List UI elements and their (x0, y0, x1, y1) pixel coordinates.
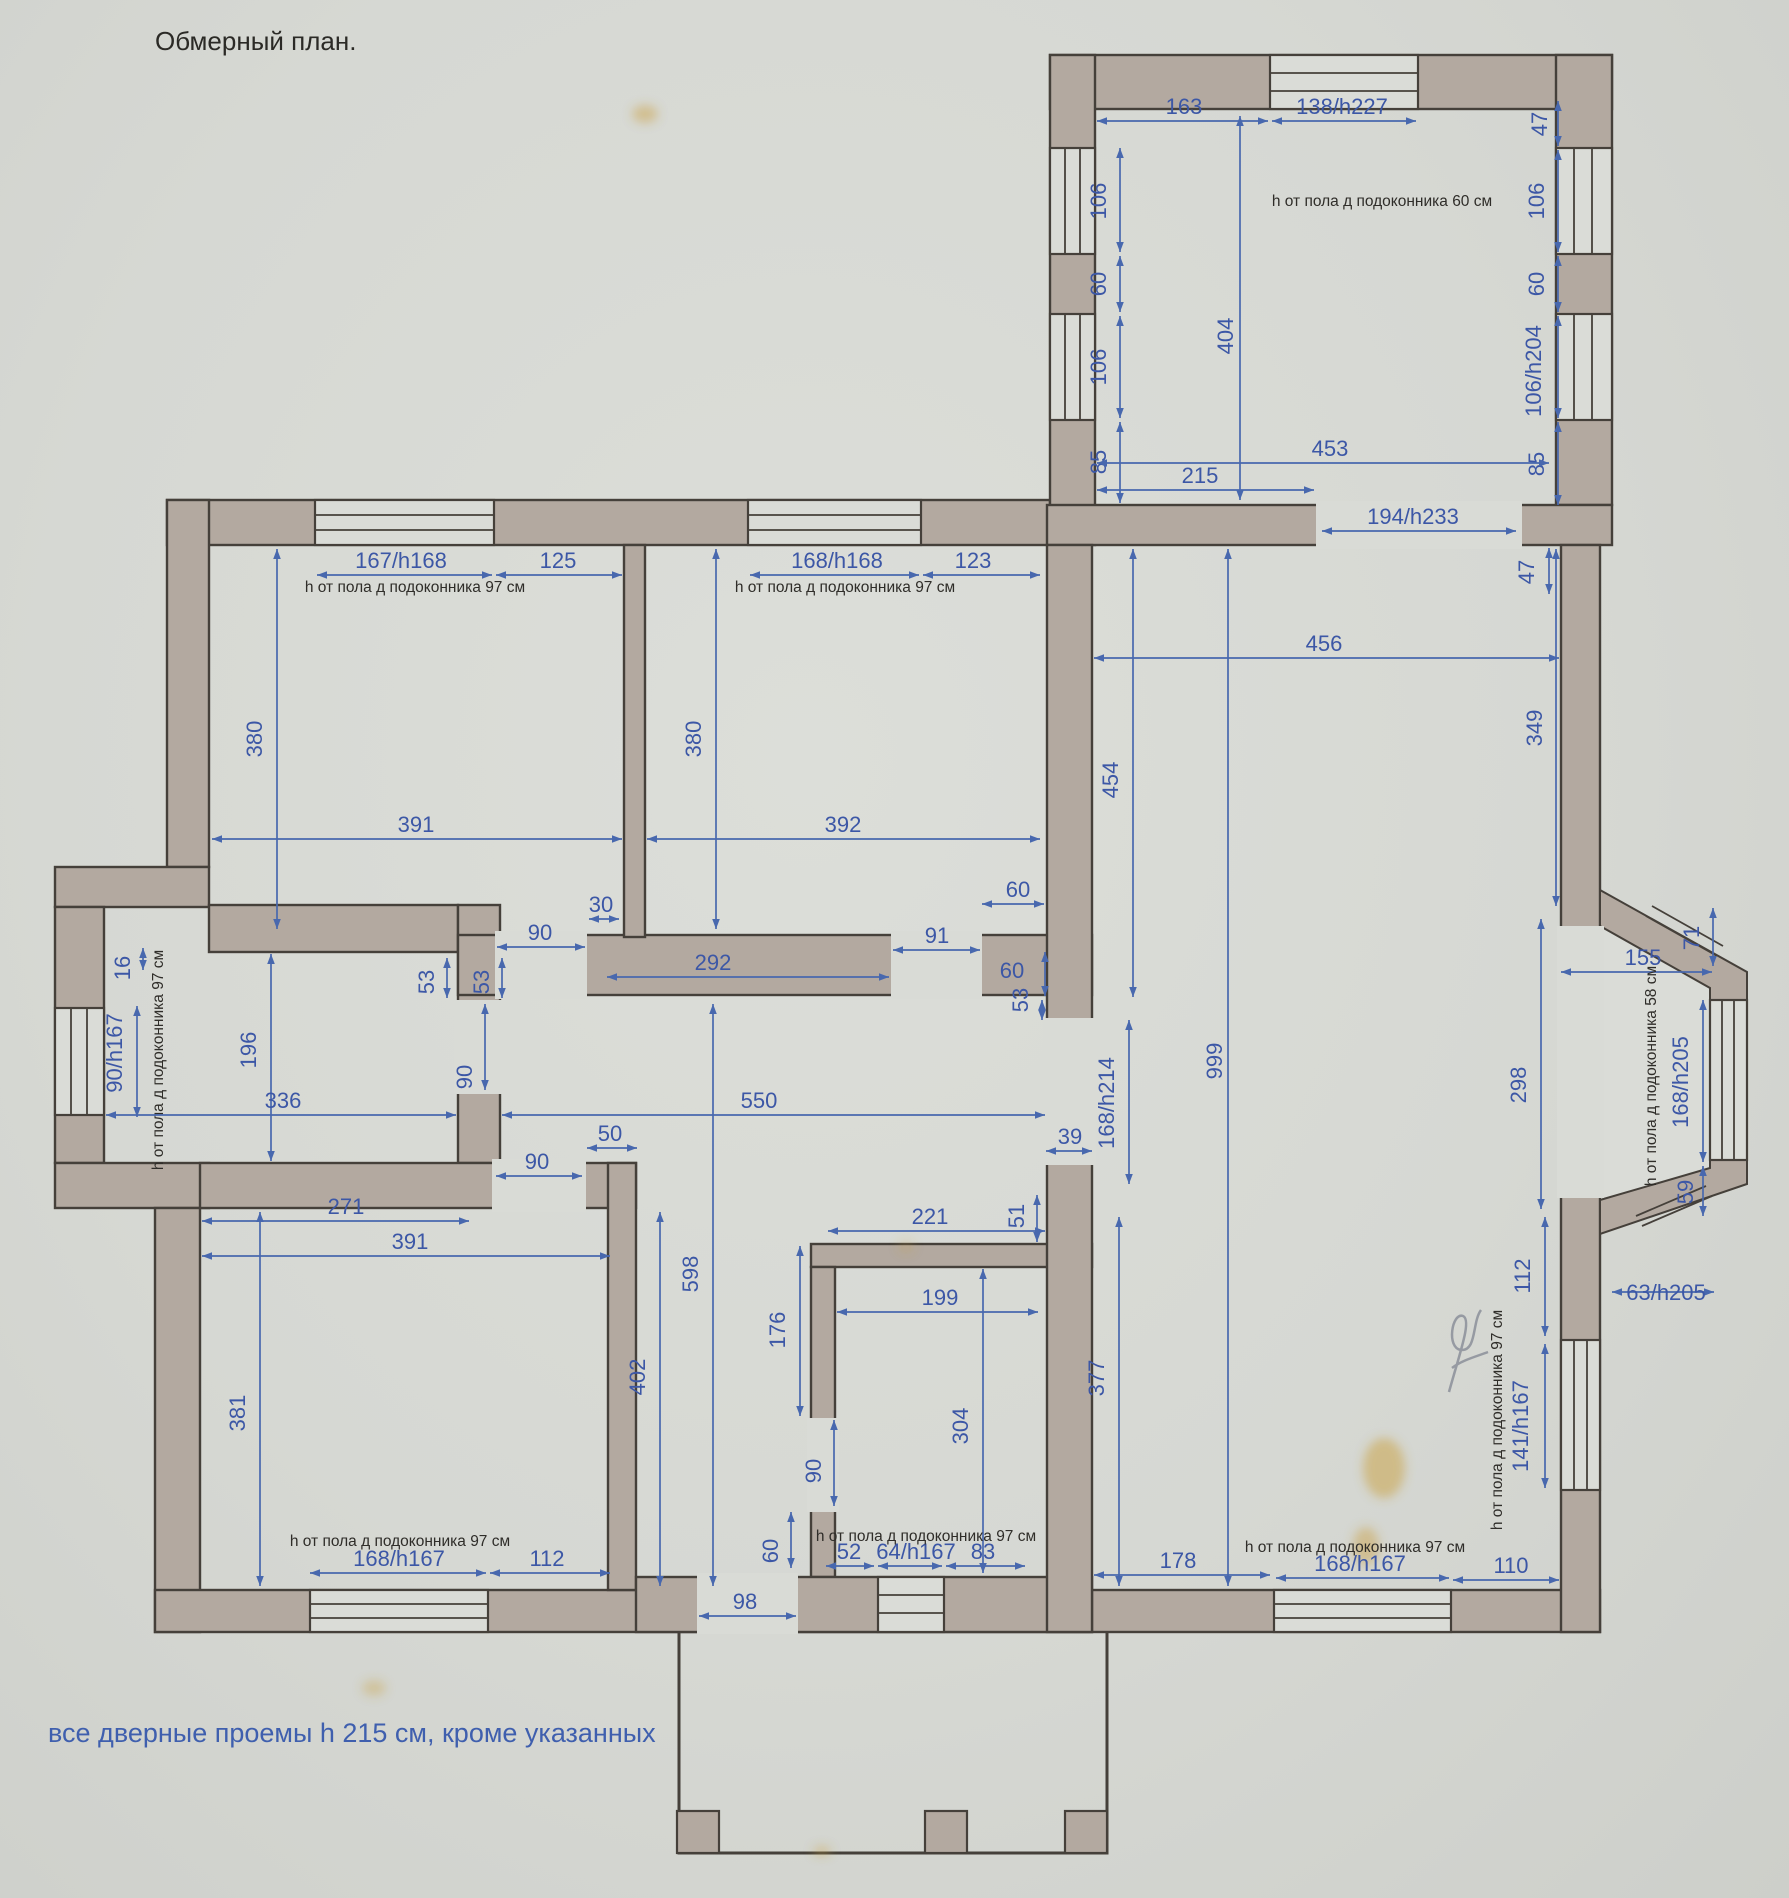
window-168h168 (748, 500, 921, 545)
window-A-right-2 (1556, 314, 1612, 420)
dim-label: 215 (1182, 463, 1219, 488)
dim-label: 178 (1160, 1548, 1197, 1573)
dim-label: 380 (681, 721, 706, 758)
dim-label: 60 (1524, 272, 1549, 296)
window-168h167-bl (310, 1590, 488, 1632)
dim-label: 221 (912, 1204, 949, 1229)
dim-label: 298 (1506, 1067, 1531, 1104)
dim-label: 106 (1086, 349, 1111, 386)
dim-label: 90 (801, 1459, 826, 1483)
dim-label: 196 (236, 1032, 261, 1069)
porch-post (677, 1811, 719, 1853)
window-A-right-1 (1556, 148, 1612, 254)
dimension-layer: 163138/h22747h от пола д подоконника 60 … (102, 94, 1714, 1616)
dim-label: 90 (452, 1065, 477, 1089)
porch-post (1065, 1811, 1107, 1853)
dim-label: 123 (955, 548, 992, 573)
dim-label: 60 (1086, 272, 1111, 296)
dim-label: 199 (922, 1285, 959, 1310)
dim-label: 598 (678, 1256, 703, 1293)
window-167h168 (315, 500, 494, 545)
plan-title: Обмерный план. (155, 26, 356, 56)
footnote: все дверные проемы h 215 см, кроме указа… (48, 1718, 656, 1748)
dim-label: 377 (1084, 1360, 1109, 1397)
dim-label: 91 (925, 923, 949, 948)
note-label: h от пола д подоконника 97 см (816, 1528, 1036, 1545)
dim-label: 391 (398, 812, 435, 837)
dim-label: 391 (392, 1229, 429, 1254)
dim-label: 110 (1493, 1553, 1528, 1578)
dim-label: 392 (825, 812, 862, 837)
dim-label: 167/h168 (355, 548, 447, 573)
dim-label: 71 (1679, 926, 1704, 950)
porch-post (925, 1811, 967, 1853)
dim-label: 47 (1527, 112, 1552, 136)
dim-label: 168/h205 (1668, 1036, 1693, 1128)
dim-label: 106 (1086, 183, 1111, 220)
dim-label: 59 (1673, 1180, 1698, 1204)
dim-label: 402 (625, 1359, 650, 1396)
dim-label: 380 (242, 721, 267, 758)
dim-label: 168/h167 (353, 1546, 445, 1571)
window-90h167 (55, 1008, 104, 1115)
dim-label: 60 (1006, 877, 1030, 902)
dim-label: 90 (525, 1149, 549, 1174)
porch (677, 1632, 1107, 1853)
dim-label: 60 (758, 1539, 783, 1563)
note-label: h от пола д подоконника 97 см (1245, 1539, 1465, 1556)
dim-label: 454 (1098, 762, 1123, 799)
dim-label: 456 (1306, 631, 1343, 656)
dim-label: 53 (414, 970, 439, 994)
dim-label: 163 (1166, 94, 1203, 119)
window-168h167-br (1274, 1590, 1451, 1632)
dim-label: 381 (225, 1395, 250, 1432)
dim-label: 90/h167 (102, 1013, 127, 1093)
note-label: h от пола д подоконника 97 см (735, 579, 955, 596)
dim-label: 453 (1312, 436, 1349, 461)
dim-label: 141/h167 (1508, 1380, 1533, 1472)
dim-label: 106 (1524, 183, 1549, 220)
dim-label: 550 (741, 1088, 778, 1113)
dim-label: 50 (598, 1121, 622, 1146)
dim-label: 16 (110, 956, 135, 980)
dim-label: 85 (1086, 450, 1111, 474)
dim-label: 304 (948, 1408, 973, 1445)
dim-label: 176 (765, 1312, 790, 1349)
dim-label: 168/h214 (1094, 1057, 1119, 1149)
dim-label: 112 (529, 1546, 564, 1571)
dim-label: 271 (328, 1194, 365, 1219)
note-label: h от пола д подоконника 97 см (150, 950, 167, 1170)
note-label: h от пола д подоконника 60 см (1272, 193, 1492, 210)
dim-label: 90 (528, 920, 552, 945)
dim-label: 47 (1514, 560, 1539, 584)
dim-label: 404 (1213, 318, 1238, 355)
window-168h205 (1710, 1000, 1747, 1160)
dim-label: 194/h233 (1367, 504, 1459, 529)
dim-label: 30 (589, 892, 613, 917)
dim-label: 85 (1524, 452, 1549, 476)
dim-label: 63/h205 (1626, 1280, 1706, 1305)
window-141h167 (1561, 1340, 1600, 1490)
note-label: h от пола д подоконника 58 см (1643, 966, 1660, 1186)
dim-label: 999 (1202, 1043, 1227, 1080)
dim-label: 349 (1522, 710, 1547, 747)
dim-label: 39 (1058, 1124, 1082, 1149)
dim-label: 53 (469, 970, 494, 994)
dim-label: 53 (1008, 988, 1033, 1012)
note-label: h от пола д подоконника 97 см (1489, 1310, 1506, 1530)
floor-plan-svg: 163138/h22747h от пола д подоконника 60 … (0, 0, 1789, 1898)
signature (1449, 1310, 1488, 1392)
dim-label: 138/h227 (1296, 94, 1388, 119)
dim-label: 60 (1000, 958, 1024, 983)
dim-label: 106/h204 (1521, 325, 1546, 417)
dim-label: 168/h168 (791, 548, 883, 573)
dim-label: 125 (540, 548, 577, 573)
dim-label: 98 (733, 1589, 757, 1614)
dim-label: 112 (1510, 1258, 1535, 1293)
note-label: h от пола д подоконника 97 см (305, 579, 525, 596)
window-64h167 (878, 1577, 944, 1632)
scanned-floor-plan-photo: 163138/h22747h от пола д подоконника 60 … (0, 0, 1789, 1898)
dim-label: 51 (1004, 1204, 1029, 1228)
dim-label: 292 (695, 950, 732, 975)
dim-label: 336 (265, 1088, 302, 1113)
